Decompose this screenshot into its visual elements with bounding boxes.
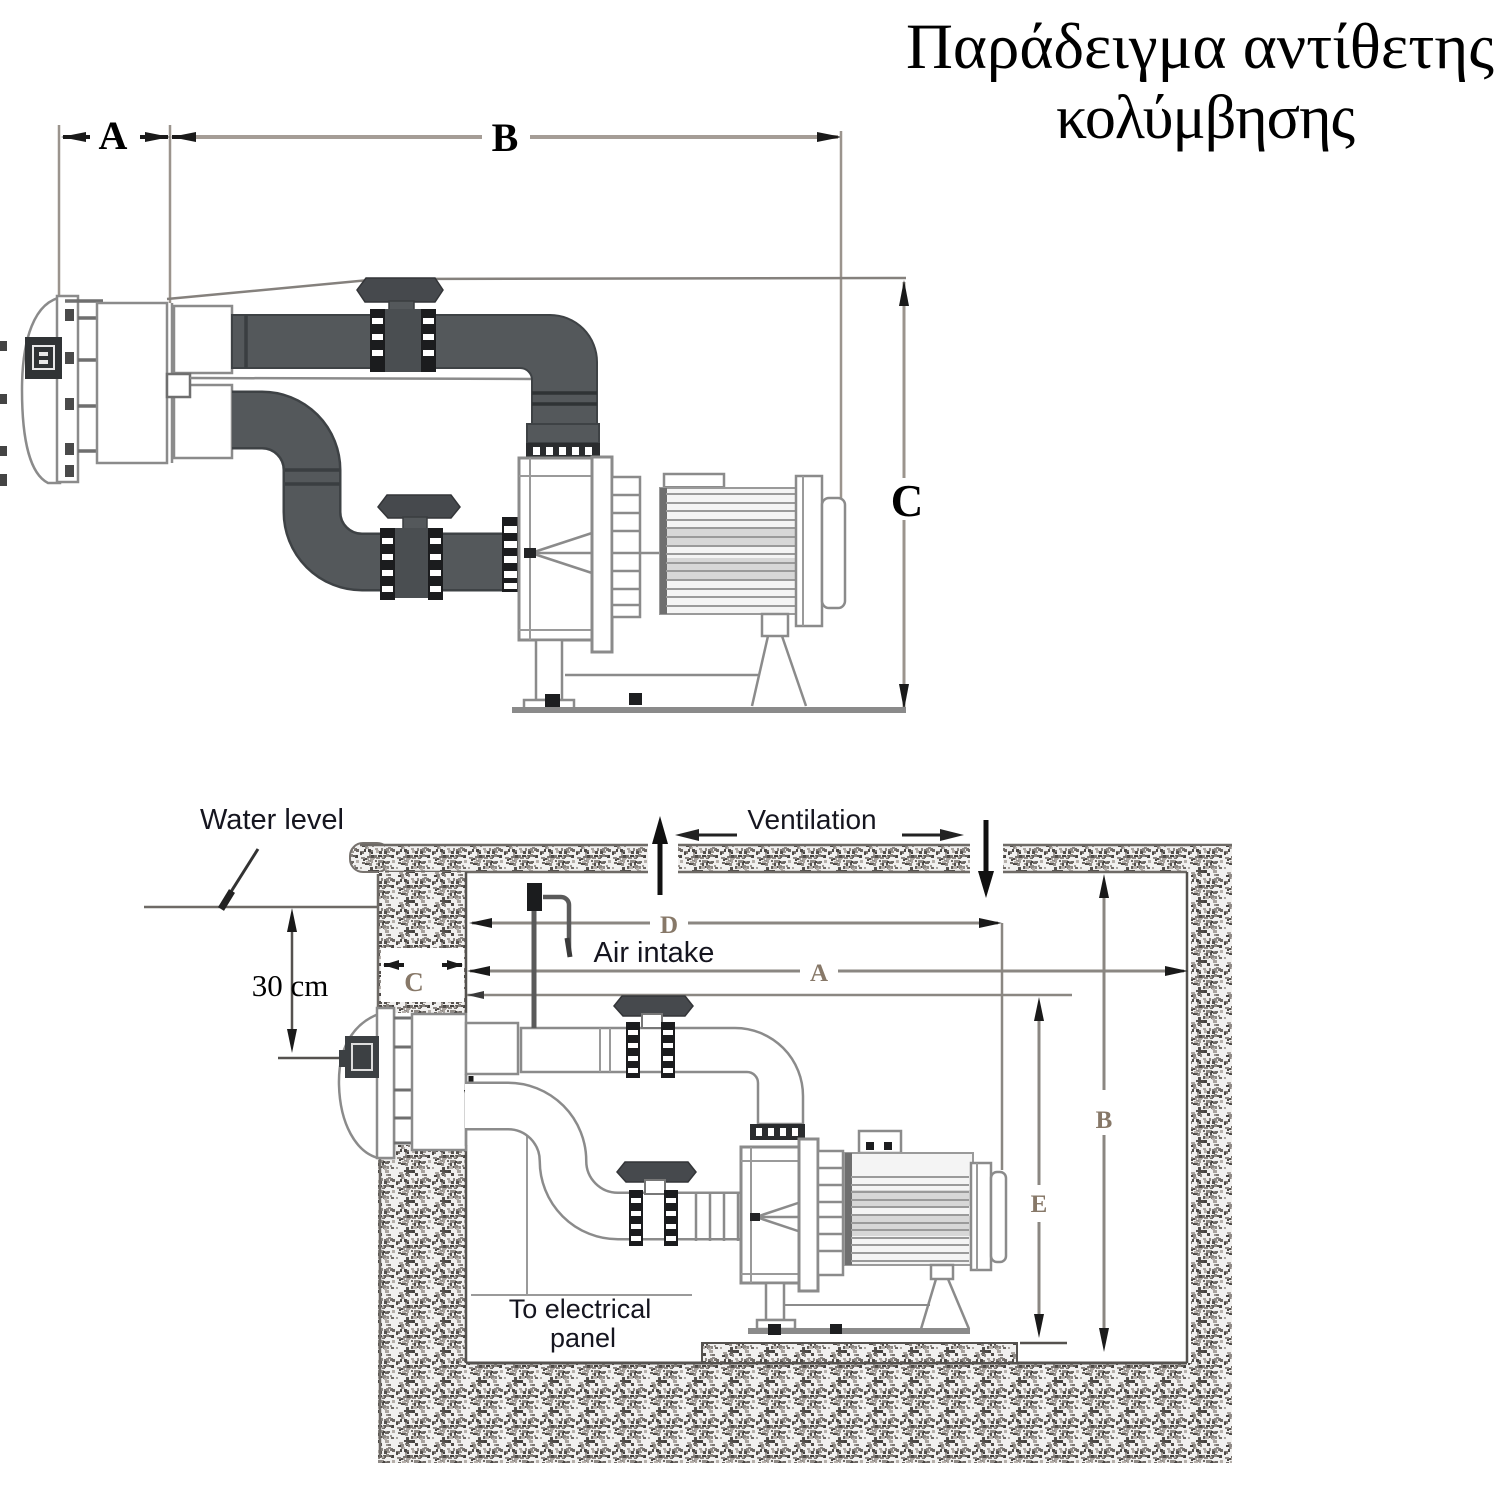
svg-text:30 cm: 30 cm	[252, 968, 329, 1003]
svg-text:E: E	[1031, 1191, 1048, 1218]
svg-text:D: D	[660, 912, 678, 939]
svg-text:panel: panel	[550, 1323, 616, 1353]
svg-text:A: A	[810, 960, 828, 987]
svg-text:B: B	[1096, 1107, 1113, 1134]
svg-text:A: A	[99, 113, 128, 158]
svg-text:κολύμβησης: κολύμβησης	[1056, 84, 1355, 152]
svg-text:Ventilation: Ventilation	[747, 804, 876, 835]
svg-text:C: C	[404, 967, 424, 997]
svg-text:Παράδειγμα αντίθετης: Παράδειγμα αντίθετης	[906, 11, 1494, 83]
svg-text:C: C	[891, 476, 924, 526]
svg-text:To electrical: To electrical	[509, 1294, 652, 1324]
svg-text:Water level: Water level	[200, 804, 344, 836]
svg-text:B: B	[492, 115, 519, 160]
svg-text:Air intake: Air intake	[594, 937, 715, 969]
